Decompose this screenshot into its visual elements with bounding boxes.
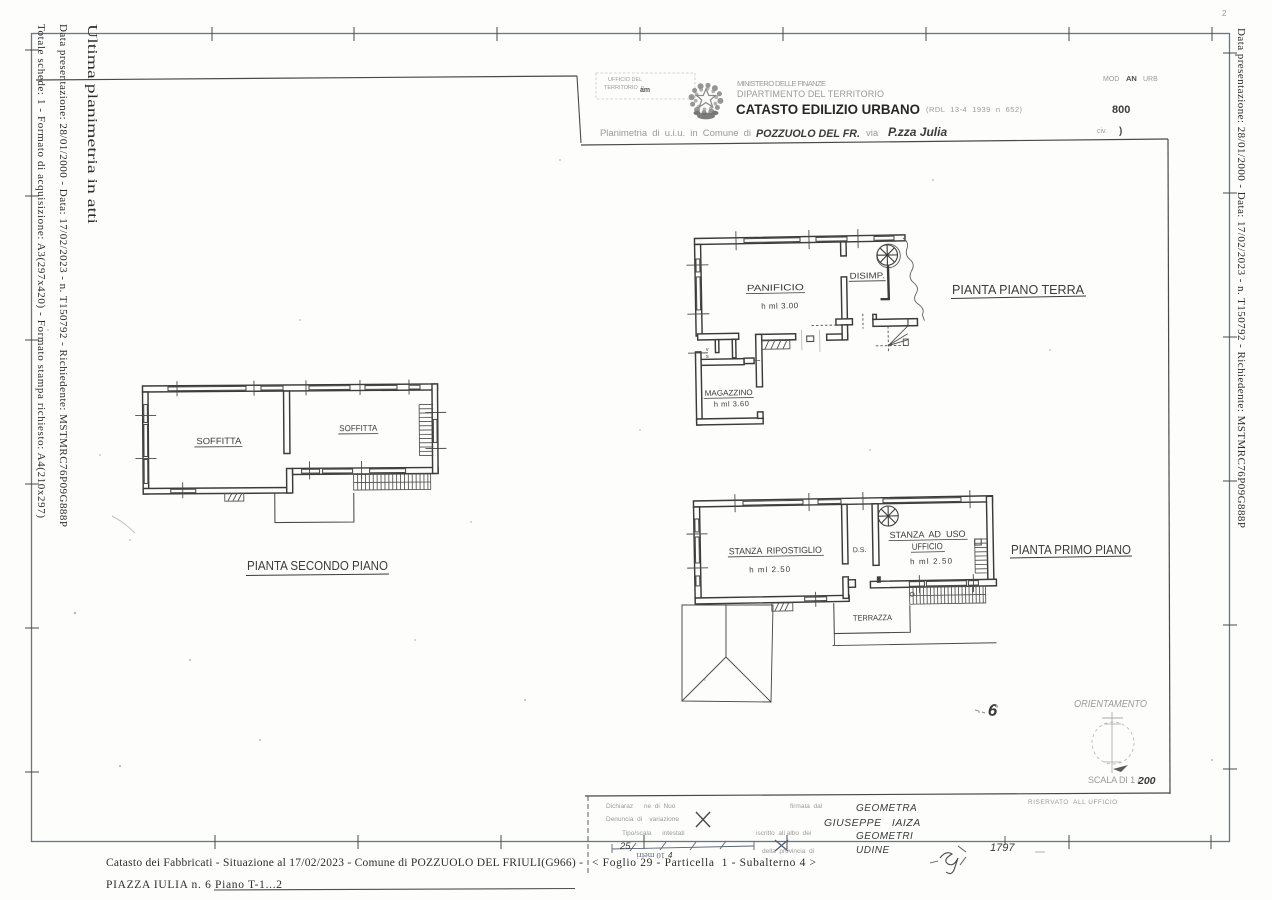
- svg-text:DISIMP.: DISIMP.: [850, 270, 885, 281]
- svg-text:Data presentazione: 28/01/2000: Data presentazione: 28/01/2000 - Data: 1…: [1235, 28, 1247, 528]
- svg-text:h ml 2.50: h ml 2.50: [910, 556, 953, 566]
- svg-text:GEOMETRI: GEOMETRI: [856, 831, 913, 842]
- svg-text:Catasto dei Fabbricati - Situa: Catasto dei Fabbricati - Situazione al 1…: [106, 857, 583, 869]
- svg-text:PIANTA PRIMO PIANO: PIANTA PRIMO PIANO: [1011, 542, 1131, 557]
- svg-text:Dichiaraz ne di Nuo: Dichiaraz ne di Nuo: [606, 803, 676, 810]
- svg-text:GEOMETRA: GEOMETRA: [856, 803, 917, 814]
- svg-text:della provincia di: della provincia di: [762, 848, 814, 855]
- svg-text:800: 800: [1112, 104, 1130, 116]
- svg-text:MINISTERO DELLE FINANZE: MINISTERO DELLE FINANZE: [737, 79, 826, 88]
- svg-text:SCALA DI 1 /: SCALA DI 1 /: [1088, 775, 1140, 785]
- svg-text:v: v: [706, 347, 709, 353]
- svg-text:UDINE: UDINE: [856, 845, 890, 856]
- svg-text:RISERVATO ALL UFFICIO: RISERVATO ALL UFFICIO: [1028, 799, 1118, 806]
- svg-text:SOFFITTA: SOFFITTA: [339, 423, 377, 433]
- svg-text:s: s: [706, 354, 709, 360]
- svg-text:Data presentazione: 28/01/2000: Data presentazione: 28/01/2000 - Data: 1…: [57, 24, 69, 527]
- svg-text:2: 2: [1222, 9, 1227, 18]
- svg-text:D.S.: D.S.: [853, 547, 867, 554]
- svg-text:PANIFICIO: PANIFICIO: [747, 282, 804, 293]
- svg-text:am: am: [640, 87, 650, 94]
- svg-text:URB: URB: [1143, 76, 1158, 83]
- svg-text:STANZA RIPOSTIGLIO: STANZA RIPOSTIGLIO: [729, 545, 822, 557]
- svg-text:firmata dal: firmata dal: [790, 803, 823, 810]
- svg-text:1797: 1797: [990, 842, 1015, 854]
- svg-text:civ.: civ.: [1097, 128, 1107, 135]
- svg-text:25: 25: [619, 841, 631, 852]
- svg-text:UFFICIO DEL: UFFICIO DEL: [608, 77, 642, 83]
- svg-text:PIANTA PIANO TERRA: PIANTA PIANO TERRA: [952, 282, 1084, 297]
- svg-text:200: 200: [1137, 775, 1156, 787]
- svg-text:(RDL 13-4 1939 n 652): (RDL 13-4 1939 n 652): [926, 105, 1023, 114]
- svg-text:MAGAZZINO: MAGAZZINO: [705, 388, 753, 398]
- svg-text:UFFICIO: UFFICIO: [912, 541, 943, 552]
- svg-text:DIPARTIMENTO DEL TERRITORIO: DIPARTIMENTO DEL TERRITORIO: [737, 89, 884, 99]
- svg-text:PIAZZA IULIA n. 6 Piano T-1...: PIAZZA IULIA n. 6 Piano T-1...2: [106, 879, 282, 891]
- svg-text:SOFFITTA: SOFFITTA: [196, 436, 241, 446]
- svg-text:h ml 3.00: h ml 3.00: [761, 301, 799, 311]
- svg-text:via: via: [866, 128, 879, 139]
- svg-text:Tipo/scala intestati: Tipo/scala intestati: [622, 830, 685, 837]
- svg-text:h ml 3.60: h ml 3.60: [714, 399, 749, 409]
- svg-text:MOD: MOD: [1103, 76, 1119, 83]
- svg-text:ORIENTAMENTO: ORIENTAMENTO: [1074, 698, 1147, 710]
- svg-text:Totale schede: 1 - Formato di: Totale schede: 1 - Formato di acquisizio…: [35, 24, 47, 518]
- svg-text:CATASTO EDILIZIO URBANO: CATASTO EDILIZIO URBANO: [736, 101, 920, 117]
- svg-text:TERRAZZA: TERRAZZA: [853, 613, 893, 623]
- svg-text:< Foglio 29 - Particella 1 -: < Foglio 29 - Particella 1 - Subalterno …: [592, 857, 816, 869]
- svg-text:Ultima planimetria in atti: Ultima planimetria in atti: [85, 24, 100, 224]
- svg-text:h ml 2.50: h ml 2.50: [749, 565, 791, 575]
- svg-text:Denuncia di variazione: Denuncia di variazione: [606, 816, 679, 823]
- svg-text:Planimetria di u.i.u. in C: Planimetria di u.i.u. in Comune di: [600, 128, 751, 139]
- svg-text:AN: AN: [1126, 74, 1137, 83]
- svg-text:PIANTA SECONDO PIANO: PIANTA SECONDO PIANO: [247, 558, 388, 573]
- svg-text:P.zza Julia: P.zza Julia: [888, 125, 947, 139]
- svg-text:POZZUOLO DEL FR.: POZZUOLO DEL FR.: [756, 128, 860, 140]
- svg-text:iscritto all albo dei: iscritto all albo dei: [756, 830, 811, 837]
- svg-text:): ): [1119, 126, 1122, 137]
- svg-text:STANZA AD USO: STANZA AD USO: [889, 529, 965, 540]
- svg-text:GIUSEPPE IAIZA: GIUSEPPE IAIZA: [824, 817, 921, 829]
